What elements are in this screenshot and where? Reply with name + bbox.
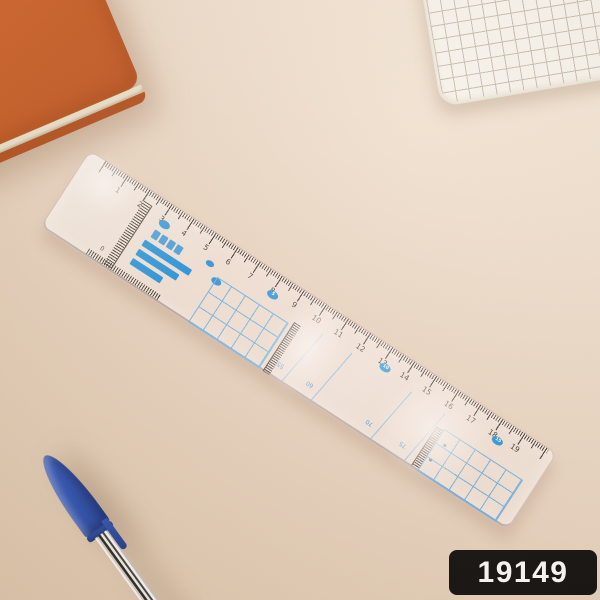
ruler-number: 9 — [290, 300, 299, 310]
product-code-text: 19149 — [478, 556, 569, 590]
ruler-number: 7 — [246, 271, 255, 281]
fan-line — [370, 392, 413, 441]
brand-glyph — [173, 244, 184, 255]
ruler-number: 1 — [113, 185, 122, 195]
product-code-badge: 19149 — [449, 550, 597, 595]
fan-line-label: 60 — [305, 379, 315, 389]
ruler-side-scale-zero: 0 — [98, 245, 105, 253]
transparent-ruler: 1234567891011121314151617181951015556070… — [40, 150, 557, 531]
pen-cap — [33, 447, 111, 539]
ruler-number: 5 — [202, 242, 211, 252]
ruler-number: 4 — [180, 228, 189, 238]
ruler-number: 6 — [224, 257, 233, 267]
product-photo-scene: 1234567891011121314151617181951015556070… — [0, 0, 600, 600]
blue-oval-marker: 5 — [265, 288, 279, 301]
notepad-grid-pattern — [402, 0, 600, 104]
fan-line — [310, 353, 353, 402]
ballpoint-pen — [31, 446, 252, 600]
ruler-cm-ticks — [98, 161, 549, 460]
blue-oval-marker: 10 — [378, 361, 392, 374]
blue-oval-marker: 15 — [490, 434, 504, 447]
fan-line-label: 75 — [398, 439, 408, 449]
blue-dot — [205, 259, 216, 269]
grid-notepad — [398, 0, 600, 107]
fan-line-label: 70 — [365, 418, 375, 428]
blue-oval-marker — [157, 218, 171, 231]
